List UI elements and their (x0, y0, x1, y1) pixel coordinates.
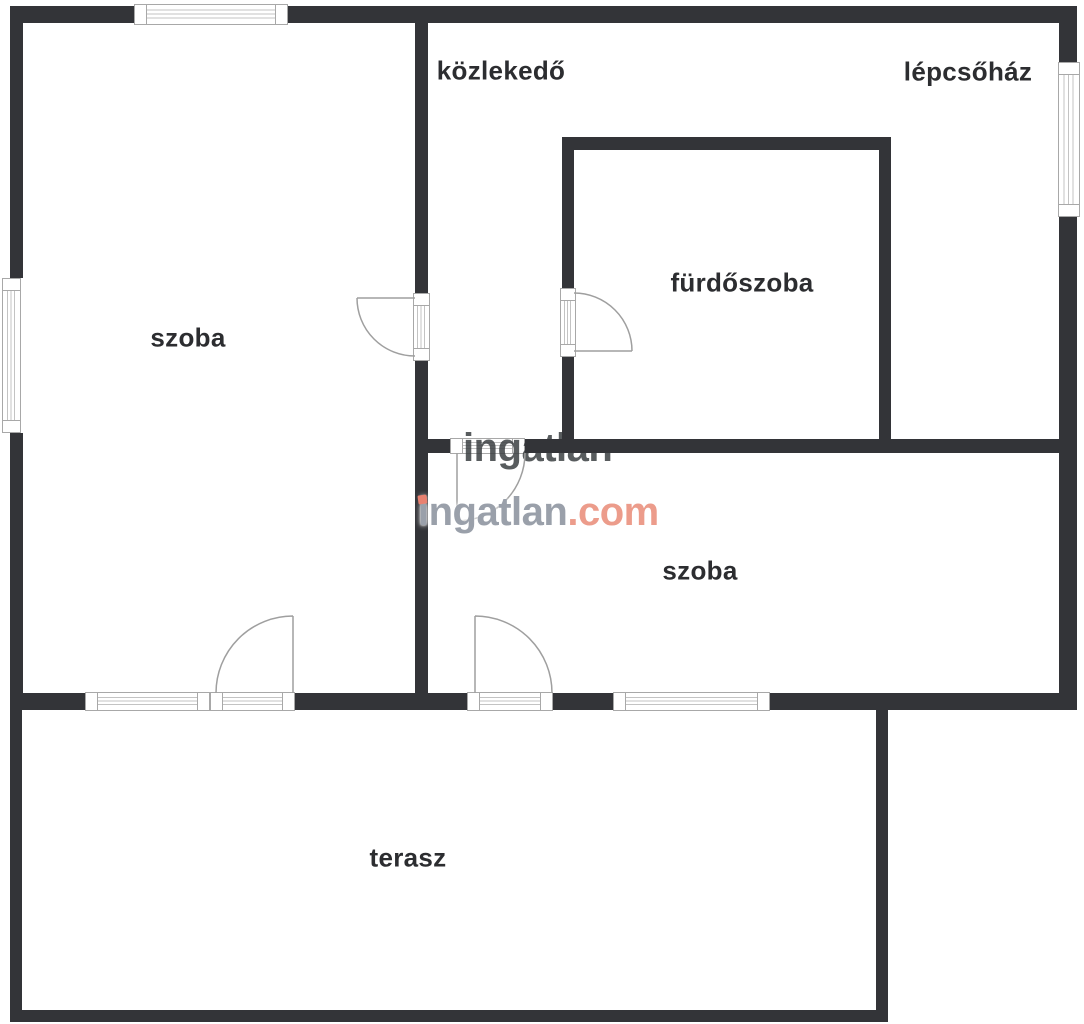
wall (295, 693, 467, 710)
wall (10, 6, 23, 278)
room-label-terasz: terasz (370, 843, 447, 874)
window-glazing (3, 290, 20, 421)
watermark-gray-text: ingatlan (418, 490, 567, 534)
room-label-kozlekedo: közlekedő (437, 56, 565, 87)
window-glazing (625, 693, 758, 710)
window-glazing (1059, 74, 1079, 205)
wall (10, 710, 22, 1022)
door-swing (357, 298, 415, 356)
room-label-szoba-left: szoba (150, 323, 225, 354)
wall (770, 693, 1077, 710)
room-label-furdoszoba: fürdőszoba (670, 268, 813, 299)
wall (1059, 217, 1077, 710)
door-threshold (467, 692, 553, 711)
room-label-szoba-right: szoba (662, 556, 737, 587)
wall (10, 1010, 888, 1022)
window-glazing (146, 5, 276, 24)
window (134, 4, 288, 25)
wall (10, 433, 23, 710)
watermark-accent-text: .com (567, 490, 658, 534)
door-swing (574, 293, 632, 351)
watermark: ingatlan.com (418, 492, 659, 532)
room-label-lepcsohaz: lépcsőház (904, 57, 1032, 88)
wall (879, 150, 891, 439)
door-threshold-glazing (222, 693, 283, 710)
door-swing (475, 616, 552, 693)
door-threshold-glazing (414, 305, 429, 349)
wall (562, 150, 574, 288)
door-threshold-glazing (561, 300, 575, 345)
wall (288, 6, 1077, 23)
floor-plan: szoba közlekedő lépcsőház fürdőszoba szo… (0, 0, 1084, 1024)
wall (428, 439, 450, 453)
wall (562, 137, 891, 150)
window (2, 278, 21, 433)
wall (525, 439, 1059, 453)
door-swing (216, 616, 293, 693)
door-threshold (413, 293, 430, 361)
wall (876, 710, 888, 1022)
wall (1059, 6, 1077, 62)
window-glazing (97, 693, 198, 710)
window (85, 692, 210, 711)
wall (562, 357, 574, 439)
window (1058, 62, 1080, 217)
door-threshold (560, 288, 576, 357)
wall (415, 23, 428, 293)
wall (10, 693, 85, 710)
wall (10, 6, 134, 23)
wall (553, 693, 613, 710)
door-threshold (210, 692, 295, 711)
window (613, 692, 770, 711)
watermark-i-dot (417, 494, 427, 504)
door-threshold-glazing (479, 693, 541, 710)
